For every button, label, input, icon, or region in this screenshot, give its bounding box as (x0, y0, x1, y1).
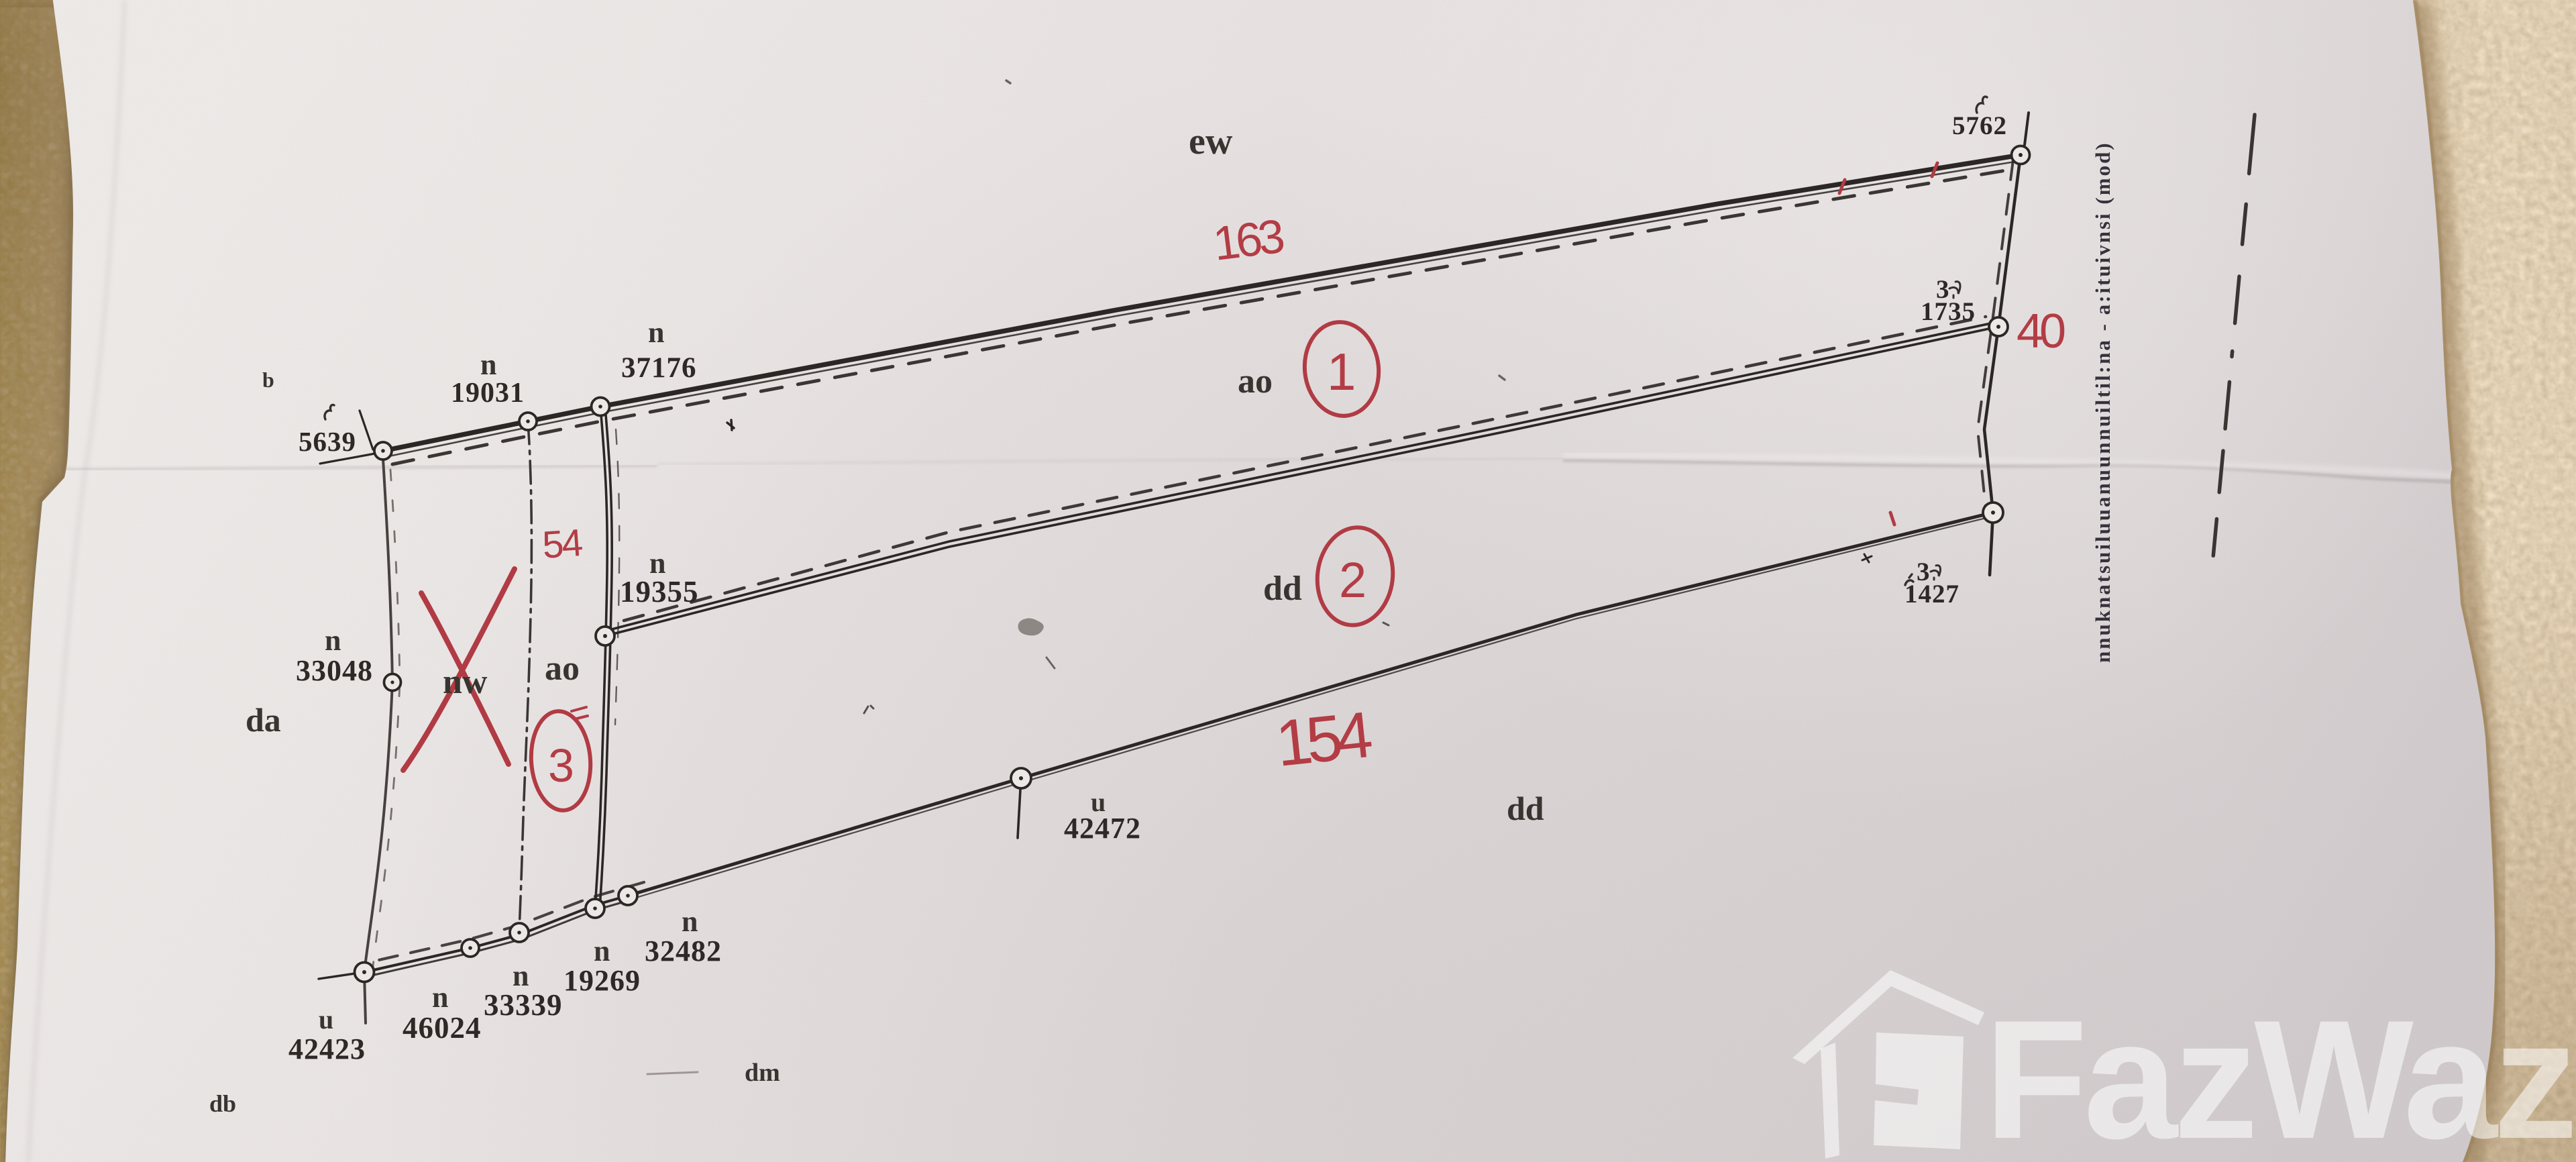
svg-text:19031: 19031 (451, 378, 525, 409)
svg-text:1: 1 (1327, 342, 1356, 401)
svg-text:nnuknatsuiluuanuunnuiltil:na -: nnuknatsuiluuanuunnuiltil:na - a:ituivns… (2091, 141, 2114, 663)
svg-text:n: n (648, 316, 664, 349)
svg-text:b: b (262, 368, 274, 392)
svg-text:163: 163 (1210, 210, 1286, 271)
svg-text:42423: 42423 (288, 1033, 366, 1065)
svg-text:5639: 5639 (299, 426, 356, 457)
svg-text:33048: 33048 (296, 654, 373, 687)
svg-text:33339: 33339 (484, 988, 563, 1022)
svg-text:n: n (513, 959, 529, 992)
svg-text:54: 54 (541, 521, 584, 567)
svg-text:3: 3 (548, 739, 574, 792)
svg-text:46024: 46024 (402, 1011, 482, 1045)
svg-text:dm: dm (745, 1059, 780, 1087)
svg-text:n: n (432, 981, 448, 1014)
svg-text:154: 154 (1273, 698, 1375, 780)
svg-text:nw: nw (443, 663, 488, 701)
svg-text:ew: ew (1189, 121, 1233, 162)
svg-text:37176: 37176 (621, 352, 697, 384)
svg-text:n: n (649, 547, 665, 580)
svg-text:FazWaz: FazWaz (1984, 986, 2574, 1162)
svg-text:ao: ao (545, 649, 580, 688)
svg-text:n: n (682, 905, 698, 938)
svg-text:dd: dd (1263, 570, 1302, 608)
svg-text:da: da (246, 701, 281, 739)
svg-text:1427: 1427 (1904, 580, 1960, 609)
svg-text:n: n (594, 935, 610, 967)
svg-text:2: 2 (1339, 552, 1366, 608)
svg-text:19269: 19269 (563, 964, 641, 997)
svg-text:db: db (209, 1090, 236, 1117)
svg-text:n: n (480, 348, 496, 381)
svg-text:5762: 5762 (1952, 111, 2007, 140)
svg-text:40: 40 (2017, 305, 2065, 358)
svg-text:ao: ao (1238, 362, 1273, 401)
svg-text:32482: 32482 (645, 935, 722, 967)
svg-text:19355: 19355 (620, 575, 699, 609)
svg-text:n: n (325, 624, 341, 657)
svg-text:3: 3 (1936, 275, 1949, 304)
svg-text:u: u (1091, 787, 1106, 817)
svg-text:3: 3 (1917, 558, 1930, 586)
svg-text:dd: dd (1507, 790, 1544, 827)
svg-text:u: u (319, 1004, 333, 1035)
